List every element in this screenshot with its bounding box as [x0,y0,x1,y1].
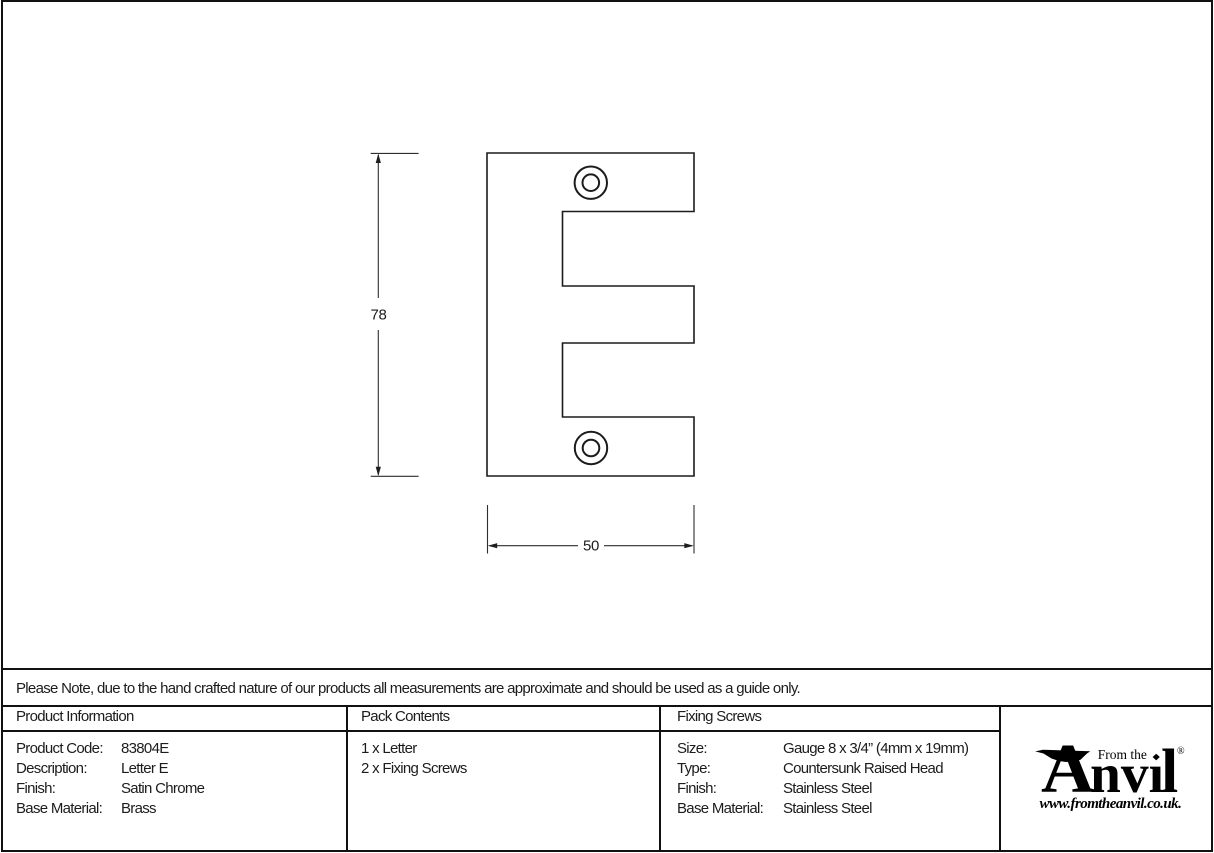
svg-text:50: 50 [583,538,599,555]
svg-text:78: 78 [370,307,386,324]
